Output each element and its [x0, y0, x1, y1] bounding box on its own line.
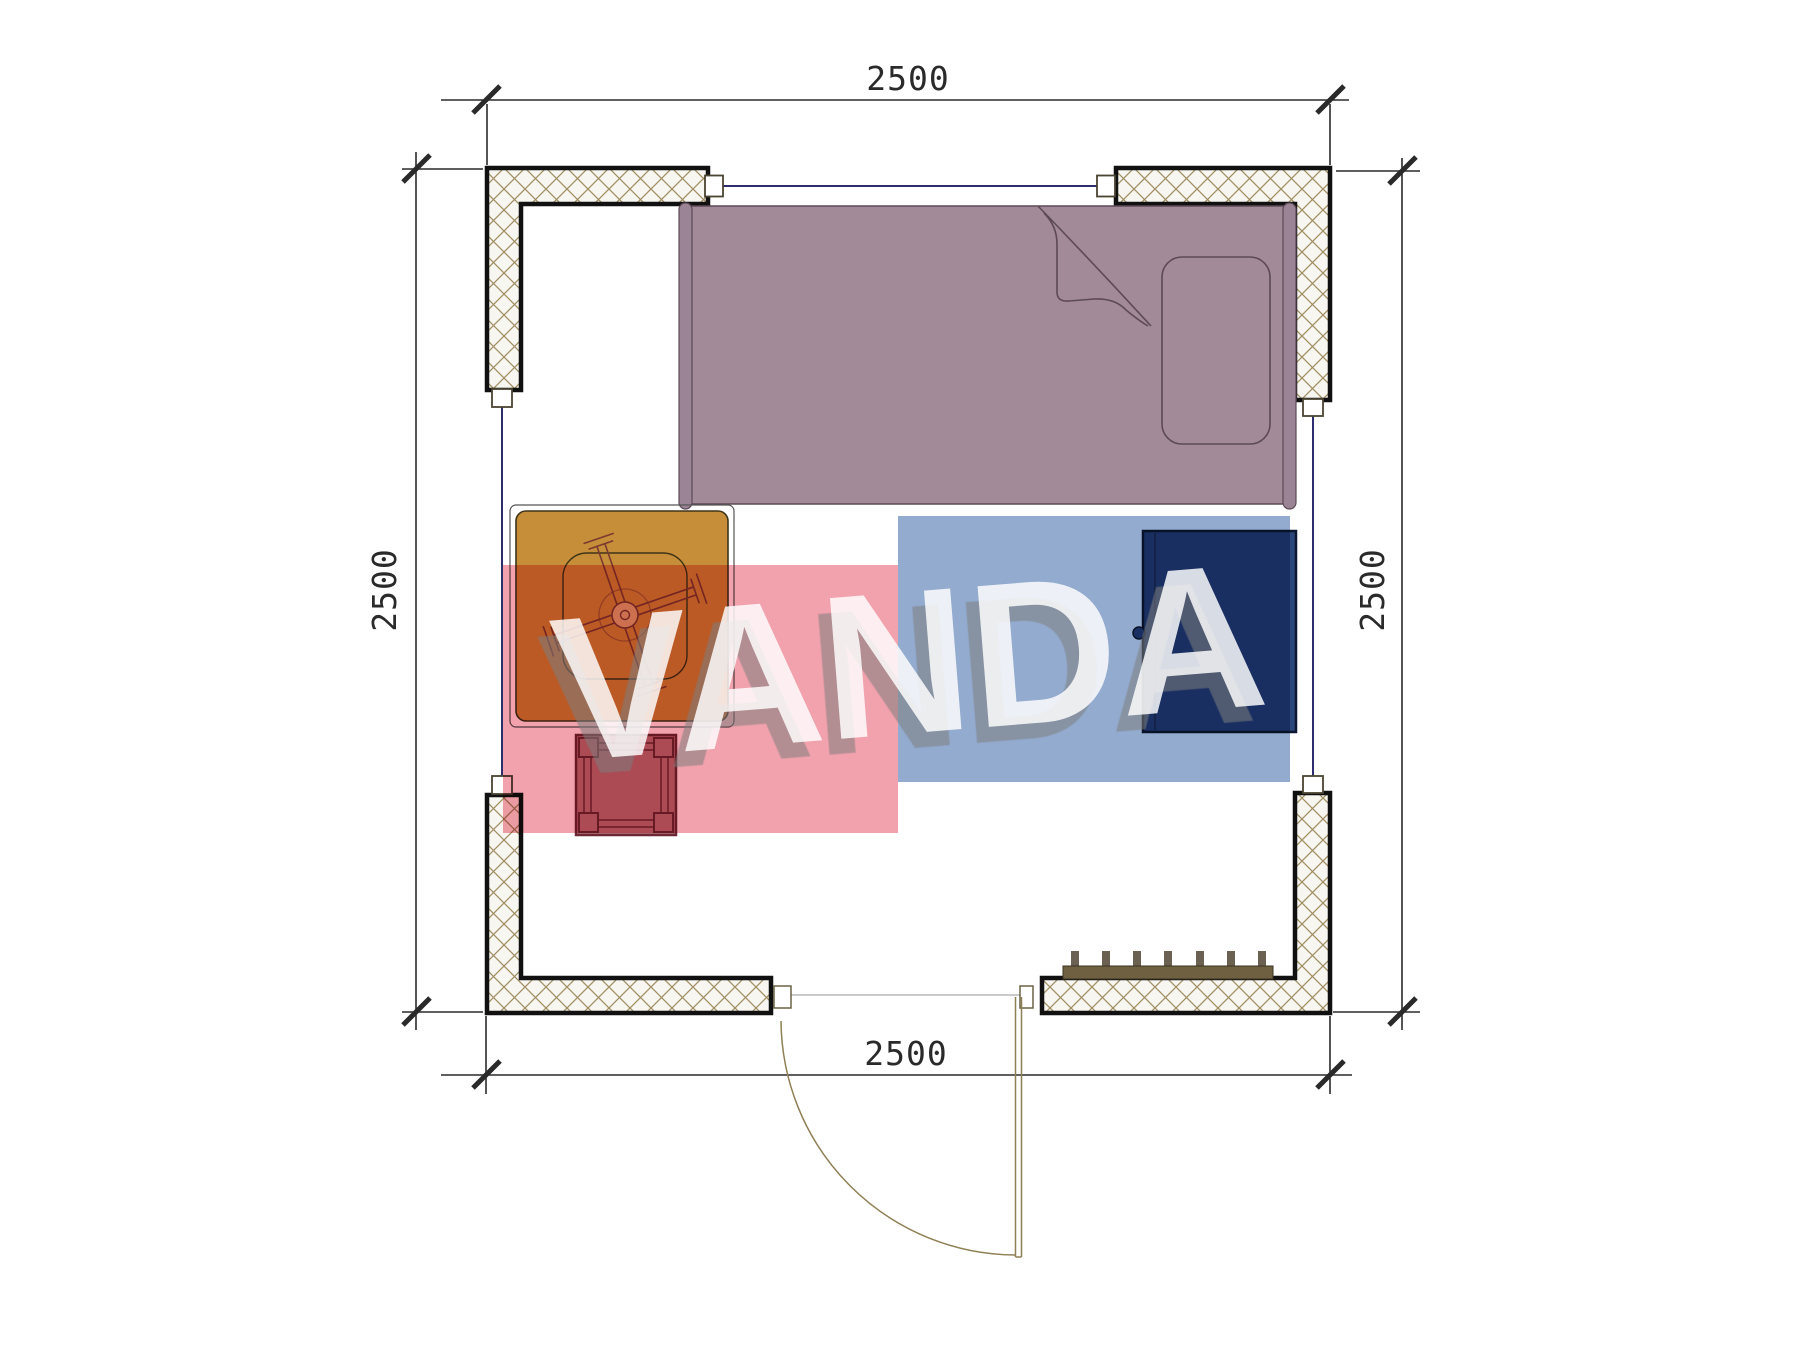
- radiator-fin: [1133, 951, 1141, 967]
- radiator-fin: [1258, 951, 1266, 967]
- window-marker-right-upper: [1303, 399, 1323, 416]
- window-marker-top-right: [1097, 176, 1115, 197]
- dimension-top-label: 2500: [866, 59, 949, 98]
- radiator-fin: [1227, 951, 1235, 967]
- radiator-fin: [1071, 951, 1079, 967]
- floor-plan-canvas: 2500 2500 2500 2500: [0, 0, 1800, 1350]
- dimension-left: 2500: [365, 152, 483, 1030]
- dimension-top: 2500: [441, 59, 1349, 165]
- wall-top-left: [487, 168, 708, 390]
- window-marker-left-upper: [492, 389, 512, 407]
- wall-bottom-right: [1042, 793, 1330, 1013]
- bed-footboard: [1283, 203, 1296, 509]
- radiator-body: [1063, 966, 1273, 979]
- radiator-fin: [1102, 951, 1110, 967]
- dimension-left-label: 2500: [365, 548, 404, 631]
- door: [774, 986, 1033, 1257]
- window-marker-right-lower: [1303, 776, 1323, 793]
- dimension-bottom-label: 2500: [864, 1034, 947, 1073]
- dimension-bottom: 2500: [441, 1016, 1352, 1094]
- dimension-right-label: 2500: [1353, 548, 1392, 631]
- radiator-fin: [1196, 951, 1204, 967]
- radiator-fin: [1164, 951, 1172, 967]
- dimension-right: 2500: [1333, 157, 1420, 1030]
- window-marker-top-left: [705, 176, 723, 197]
- door-jamb-left: [774, 986, 791, 1008]
- bed: [679, 203, 1296, 509]
- radiator: [1063, 951, 1273, 979]
- bed-headboard: [679, 203, 692, 509]
- bed-mattress: [688, 206, 1290, 504]
